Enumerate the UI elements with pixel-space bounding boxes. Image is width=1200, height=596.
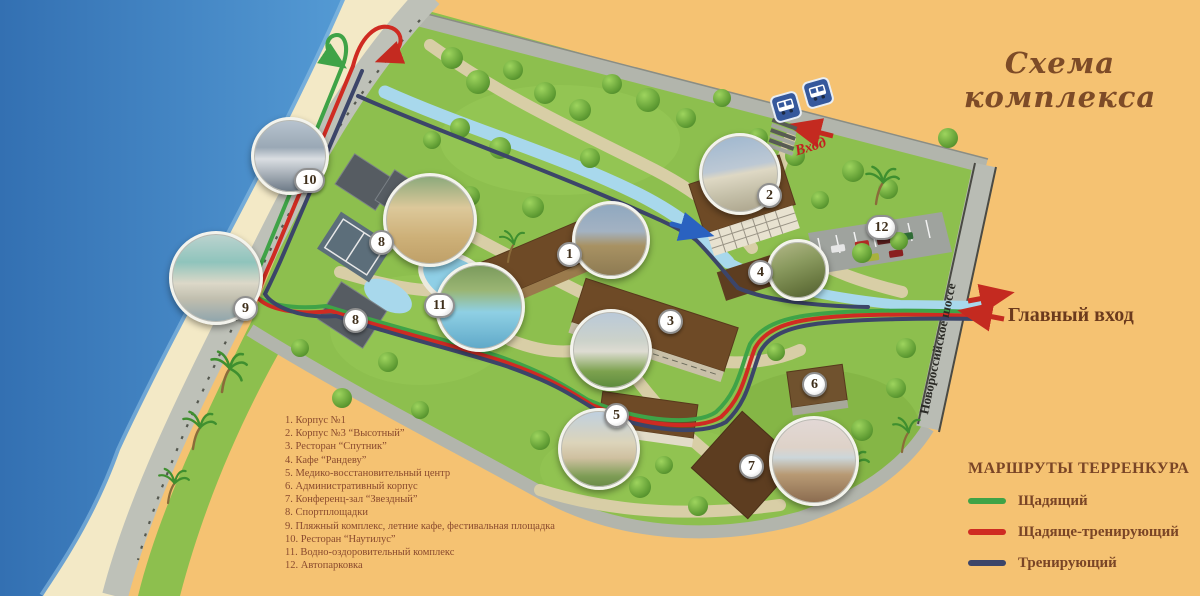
marker-2: 2 (757, 183, 782, 208)
legend-item: 12. Автопарковка (285, 559, 625, 572)
route-label: Щадящий (1018, 493, 1088, 510)
legend-item: 7. Конференц-зал “Звездный” (285, 493, 625, 506)
marker-7: 7 (739, 454, 764, 479)
legend-item: 9. Пляжный комплекс, летние кафе, фестив… (285, 520, 625, 533)
bus-icon (802, 77, 834, 109)
marker-12: 12 (866, 215, 897, 240)
marker-6: 6 (802, 372, 827, 397)
legend-item: 2. Корпус №3 “Высотный” (285, 427, 625, 440)
route-label: Тренирующий (1018, 555, 1117, 572)
marker-4: 4 (748, 260, 773, 285)
photo-circle-restaurant-sputnik (570, 309, 652, 391)
legend-item: 1. Корпус №1 (285, 414, 625, 427)
marker-10: 10 (294, 168, 325, 193)
legend-item: 5. Медико-восстановительный центр (285, 467, 625, 480)
photo-circle-conference-hall (769, 416, 859, 506)
photo-circle-sport-grounds (383, 173, 477, 267)
legend-item: 10. Ресторан “Наутилус” (285, 533, 625, 546)
photo-circle-building-1 (572, 201, 650, 279)
legend-item: 4. Кафе “Рандеву” (285, 454, 625, 467)
routes-legend: МАРШРУТЫ ТЕРРЕНКУРА Щадящий Щадяще-трени… (968, 460, 1198, 585)
marker-8: 8 (369, 230, 394, 255)
route-swatch-red (968, 529, 1006, 535)
route-swatch-blue (968, 560, 1006, 566)
marker-11: 11 (424, 293, 455, 318)
legend-item: 11. Водно-оздоровительный комплекс (285, 546, 625, 559)
resort-map: 1 2 3 4 5 6 7 8 8 9 10 11 12 Схема компл… (0, 0, 1200, 596)
map-legend-list: 1. Корпус №1 2. Корпус №3 “Высотный” 3. … (285, 414, 625, 572)
photo-circle-cafe-rendezvous (767, 239, 829, 301)
legend-item: 8. Спортплощадки (285, 506, 625, 519)
route-label: Щадяще-тренирующий (1018, 524, 1179, 541)
route-swatch-green (968, 498, 1006, 504)
legend-item: 3. Ресторан “Спутник” (285, 440, 625, 453)
marker-9: 9 (233, 296, 258, 321)
marker-3: 3 (658, 309, 683, 334)
routes-legend-row: Щадящий (968, 492, 1198, 510)
marker-8b: 8 (343, 308, 368, 333)
bus-icon (770, 91, 802, 123)
routes-legend-heading: МАРШРУТЫ ТЕРРЕНКУРА (968, 460, 1198, 478)
routes-legend-row: Тренирующий (968, 554, 1198, 572)
marker-1: 1 (557, 242, 582, 267)
legend-item: 6. Административный корпус (285, 480, 625, 493)
main-entrance-label: Главный вход (1008, 304, 1134, 327)
page-title: Схема комплекса (930, 46, 1190, 114)
routes-legend-row: Щадяще-тренирующий (968, 523, 1198, 541)
